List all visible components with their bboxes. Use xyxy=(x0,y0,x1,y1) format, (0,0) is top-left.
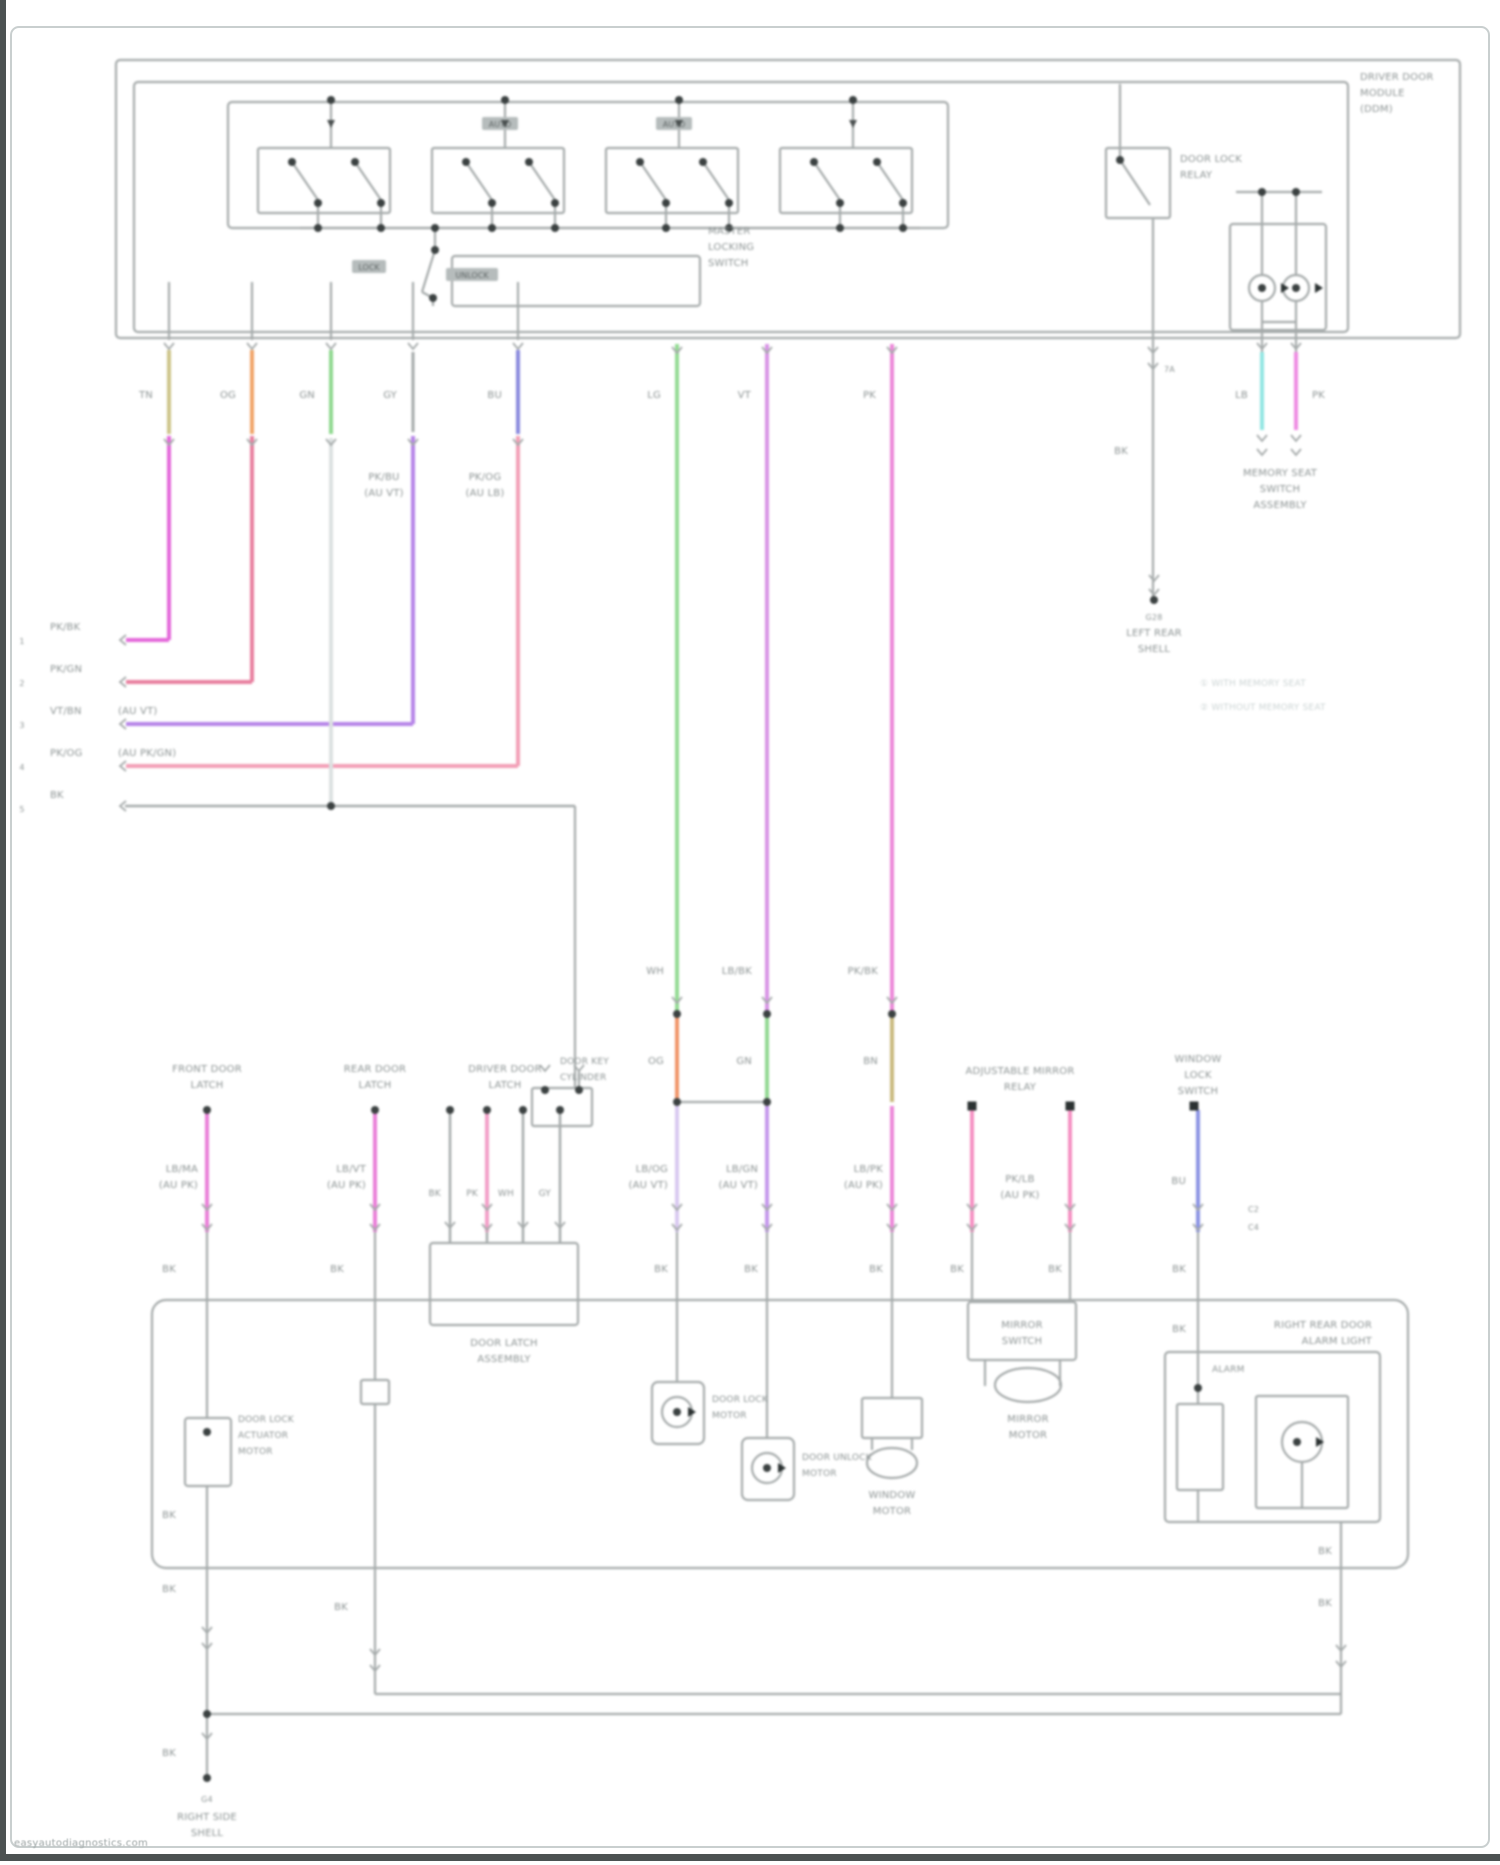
tag-label: LOCK xyxy=(358,263,380,272)
junction-dot xyxy=(377,224,385,232)
component-box xyxy=(361,1380,389,1404)
diagram-label: (AU PK/GN) xyxy=(118,748,176,759)
diagram-label: LEFT REAR xyxy=(1126,628,1182,639)
diagram-label: G4 xyxy=(201,1795,213,1804)
diagram-label: WINDOW xyxy=(869,1490,916,1501)
diagram-label: LOCK xyxy=(1184,1070,1212,1081)
diagram-label: RIGHT REAR DOOR xyxy=(1274,1320,1372,1331)
diagram-label: VT xyxy=(738,390,752,401)
diagram-label: PK/OG xyxy=(469,472,502,483)
diagram-label: (DDM) xyxy=(1360,104,1393,115)
diagram-label: BK xyxy=(1172,1264,1186,1275)
diagram-label: SHELL xyxy=(191,1828,224,1839)
diagram-label: BK xyxy=(1114,446,1128,457)
arrow-down-icon xyxy=(327,120,335,128)
motor-oval xyxy=(867,1448,917,1478)
connector-tick xyxy=(247,343,257,349)
junction-dot xyxy=(899,199,907,207)
wiring-diagram: LOCKUNLOCKAUTOAUTODRIVER DOORMODULE(DDM)… xyxy=(0,0,1500,1861)
diagram-label: (AU PK) xyxy=(1000,1190,1039,1201)
diagram-label: PK/OG xyxy=(50,748,83,759)
diagram-label: SWITCH xyxy=(1002,1336,1042,1347)
diagram-label: WINDOW xyxy=(1175,1054,1222,1065)
connector-tick xyxy=(408,343,418,349)
diagram-label: MOTOR xyxy=(1009,1430,1047,1441)
wire-gray xyxy=(703,162,729,200)
diagram-label: SWITCH xyxy=(1178,1086,1218,1097)
diagram-label: BK xyxy=(869,1264,883,1275)
diagram-label: DOOR LOCK xyxy=(238,1415,295,1425)
connector-tick xyxy=(326,343,336,349)
diagram-label: G28 xyxy=(1146,613,1163,622)
connector-tick xyxy=(1257,435,1267,441)
diagram-label: VT/BN xyxy=(50,706,82,717)
diagram-label: BK xyxy=(429,1189,442,1199)
wire-gray xyxy=(1120,160,1150,205)
diagram-label: MODULE xyxy=(1360,88,1405,99)
junction-dot xyxy=(483,1106,491,1114)
connector-tick xyxy=(120,761,126,771)
diagram-label: BK xyxy=(162,1584,176,1595)
connector-tick xyxy=(120,635,126,645)
diagram-label: REAR DOOR xyxy=(344,1064,406,1075)
junction-dot xyxy=(662,199,670,207)
connector-tick xyxy=(513,343,523,349)
diagram-label: DOOR UNLOCK xyxy=(802,1453,873,1463)
diagram-label: 7A xyxy=(1164,365,1175,374)
junction-dot xyxy=(1194,1384,1202,1392)
junction-dot xyxy=(873,158,881,166)
junction-dot xyxy=(327,96,335,104)
diagram-label: WH xyxy=(646,966,664,977)
diagram-label: 2 xyxy=(19,679,24,688)
connector-square xyxy=(1066,1102,1075,1111)
junction-dot xyxy=(203,1710,211,1718)
diagram-label: LATCH xyxy=(489,1080,522,1091)
junction-dot xyxy=(556,1106,564,1114)
diagram-label: GN xyxy=(299,390,315,401)
junction-dot xyxy=(203,1428,211,1436)
junction-dot xyxy=(1293,1438,1301,1446)
component-box xyxy=(432,148,564,213)
diagram-label: ② WITHOUT MEMORY SEAT xyxy=(1200,703,1326,713)
junction-dot xyxy=(1116,156,1124,164)
diagram-label: LB/OG xyxy=(636,1164,668,1175)
tag-label: UNLOCK xyxy=(455,271,489,280)
diagram-label: GN xyxy=(736,1056,752,1067)
diagram-label: MOTOR xyxy=(802,1469,837,1479)
diagram-label: ALARM xyxy=(1212,1365,1245,1375)
junction-dot xyxy=(836,224,844,232)
diagram-label: RELAY xyxy=(1180,170,1213,181)
connector-tick xyxy=(1291,435,1301,441)
junction-dot xyxy=(488,199,496,207)
diagram-label: MIRROR xyxy=(1001,1320,1043,1331)
connector-tick xyxy=(120,719,126,729)
junction-dot xyxy=(446,1106,454,1114)
wire-gray xyxy=(355,162,381,200)
junction-dot xyxy=(203,1774,211,1782)
wire-gray xyxy=(877,162,903,200)
diagram-label: BK xyxy=(654,1264,668,1275)
diagram-label: WH xyxy=(498,1189,514,1199)
diagram-label: BK xyxy=(334,1602,348,1613)
junction-dot xyxy=(501,96,509,104)
junction-dot xyxy=(699,158,707,166)
component-box xyxy=(968,1302,1076,1360)
diagram-label: OG xyxy=(648,1056,664,1067)
component-box xyxy=(258,148,390,213)
diagram-label: LG xyxy=(647,390,661,401)
diagram-label: ADJUSTABLE MIRROR xyxy=(966,1066,1075,1077)
diagram-label: BK xyxy=(1172,1324,1186,1335)
diagram-label: (AU VT) xyxy=(364,488,404,499)
junction-dot xyxy=(849,96,857,104)
junction-dot xyxy=(675,96,683,104)
wire-gray xyxy=(422,250,435,292)
junction-dot xyxy=(1292,188,1300,196)
junction-dot xyxy=(203,1106,211,1114)
diagram-label: (AU VT) xyxy=(629,1180,669,1191)
wire-gray xyxy=(529,162,555,200)
component-box xyxy=(606,148,738,213)
junction-dot xyxy=(377,199,385,207)
diagram-label: BK xyxy=(1318,1598,1332,1609)
diagram-label: BK xyxy=(330,1264,344,1275)
diagram-label: DRIVER DOOR xyxy=(1360,72,1433,83)
wiring-diagram-svg: LOCKUNLOCKAUTOAUTODRIVER DOORMODULE(DDM)… xyxy=(0,0,1500,1861)
diagram-label: 3 xyxy=(19,721,24,730)
component-box xyxy=(134,82,1348,332)
diagram-label: MOTOR xyxy=(238,1447,273,1457)
junction-dot xyxy=(525,158,533,166)
diagram-label: MASTER xyxy=(708,226,750,237)
diagram-label: PK/BU xyxy=(368,472,399,483)
diagram-label: PK/LB xyxy=(1005,1174,1034,1185)
diagram-label: FRONT DOOR xyxy=(172,1064,242,1075)
diagram-label: DOOR KEY xyxy=(560,1057,609,1067)
diagram-label: MEMORY SEAT xyxy=(1243,468,1318,479)
diagram-label: LB/GN xyxy=(726,1164,758,1175)
junction-dot xyxy=(314,224,322,232)
watermark: easyautodiagnostics.com xyxy=(14,1838,148,1849)
diagram-label: LB/PK xyxy=(854,1164,884,1175)
diagram-label: GY xyxy=(539,1189,552,1199)
junction-dot xyxy=(836,199,844,207)
diagram-label: PK xyxy=(466,1189,479,1199)
diagram-label: MIRROR xyxy=(1007,1414,1049,1425)
diagram-label: MOTOR xyxy=(712,1411,747,1421)
diagram-label: DOOR LOCK xyxy=(1180,154,1242,165)
junction-dot xyxy=(899,224,907,232)
junction-dot xyxy=(431,246,439,254)
junction-dot xyxy=(636,158,644,166)
wire-gray xyxy=(814,162,840,200)
junction-dot xyxy=(1258,188,1266,196)
diagram-label: 1 xyxy=(19,637,24,646)
junction-dot xyxy=(673,1098,681,1106)
junction-dot xyxy=(541,1086,549,1094)
component-box xyxy=(430,1243,578,1325)
diagram-label: BU xyxy=(1171,1176,1186,1187)
junction-dot xyxy=(763,1010,771,1018)
arrow-down-icon xyxy=(849,120,857,128)
diagram-label: BK xyxy=(1048,1264,1062,1275)
diagram-label: DRIVER DOOR xyxy=(468,1064,541,1075)
wire-gray xyxy=(292,162,318,200)
component-box xyxy=(780,148,912,213)
diagram-label: 4 xyxy=(19,763,24,772)
diagram-label: ASSEMBLY xyxy=(1253,500,1307,511)
diagram-label: TN xyxy=(138,390,153,401)
diagram-label: PK/GN xyxy=(50,664,82,675)
arrow-right-icon xyxy=(1281,283,1289,293)
junction-dot xyxy=(462,158,470,166)
junction-dot xyxy=(314,199,322,207)
diagram-label: LB/MA xyxy=(166,1164,198,1175)
diagram-label: OG xyxy=(220,390,236,401)
diagram-label: (AU PK) xyxy=(159,1180,198,1191)
connector-tick xyxy=(120,677,126,687)
component-box xyxy=(152,1300,1408,1568)
diagram-label: (AU VT) xyxy=(719,1180,759,1191)
diagram-label: DOOR LOCK xyxy=(712,1395,769,1405)
component-box xyxy=(862,1398,922,1438)
diagram-label: SWITCH xyxy=(1260,484,1300,495)
connector-square xyxy=(968,1102,977,1111)
diagram-label: DOOR LATCH xyxy=(470,1338,537,1349)
diagram-label: LB xyxy=(1235,390,1248,401)
diagram-label: MOTOR xyxy=(873,1506,911,1517)
junction-dot xyxy=(673,1408,681,1416)
junction-dot xyxy=(488,224,496,232)
junction-dot xyxy=(673,1010,681,1018)
diagram-label: (AU PK) xyxy=(327,1180,366,1191)
junction-dot xyxy=(431,224,439,232)
diagram-label: BK xyxy=(744,1264,758,1275)
diagram-label: (AU LB) xyxy=(466,488,505,499)
diagram-label: PK/BK xyxy=(848,966,879,977)
diagram-label: BN xyxy=(863,1056,878,1067)
junction-dot xyxy=(519,1106,527,1114)
diagram-label: BK xyxy=(950,1264,964,1275)
connector-tick xyxy=(1291,449,1301,455)
junction-dot xyxy=(662,224,670,232)
junction-dot xyxy=(1292,284,1300,292)
wire-gray xyxy=(466,162,492,200)
junction-dot xyxy=(725,199,733,207)
junction-dot xyxy=(371,1106,379,1114)
junction-dot xyxy=(1150,596,1158,604)
component-box xyxy=(1106,148,1170,218)
connector-square xyxy=(1190,1102,1199,1111)
diagram-label: LOCKING xyxy=(708,242,754,253)
diagram-label: GY xyxy=(383,390,397,401)
diagram-label: PK xyxy=(1312,390,1325,401)
diagram-label: BU xyxy=(487,390,502,401)
junction-dot xyxy=(351,158,359,166)
diagram-label: C4 xyxy=(1248,1223,1259,1232)
connector-tick xyxy=(1257,449,1267,455)
diagram-label: PK xyxy=(863,390,876,401)
wire-gray xyxy=(640,162,666,200)
junction-dot xyxy=(288,158,296,166)
diagram-label: 5 xyxy=(19,805,24,814)
diagram-label: LB/BK xyxy=(722,966,752,977)
diagram-label: BK xyxy=(162,1748,176,1759)
diagram-label: ACTUATOR xyxy=(238,1431,288,1441)
diagram-label: BK xyxy=(50,790,64,801)
diagram-label: ① WITH MEMORY SEAT xyxy=(1200,679,1306,689)
junction-dot xyxy=(763,1098,771,1106)
arrow-right-icon xyxy=(1315,283,1323,293)
diagram-label: ASSEMBLY xyxy=(477,1354,531,1365)
diagram-label: PK/BK xyxy=(50,622,81,633)
diagram-label: SHELL xyxy=(1138,644,1171,655)
junction-dot xyxy=(551,224,559,232)
diagram-label: (AU VT) xyxy=(118,706,158,717)
junction-dot xyxy=(327,802,335,810)
diagram-label: BK xyxy=(162,1264,176,1275)
diagram-label: (AU PK) xyxy=(844,1180,883,1191)
junction-dot xyxy=(888,1010,896,1018)
diagram-label: BK xyxy=(1318,1546,1332,1557)
junction-dot xyxy=(551,199,559,207)
diagram-label: ALARM LIGHT xyxy=(1302,1336,1373,1347)
junction-dot xyxy=(1258,284,1266,292)
motor-oval xyxy=(995,1368,1061,1402)
component-box xyxy=(1177,1404,1223,1490)
junction-dot xyxy=(810,158,818,166)
diagram-label: RELAY xyxy=(1004,1082,1037,1093)
junction-dot xyxy=(429,294,437,302)
diagram-label: SWITCH xyxy=(708,258,748,269)
diagram-label: BK xyxy=(162,1510,176,1521)
diagram-label: LB/VT xyxy=(336,1164,366,1175)
diagram-label: LATCH xyxy=(359,1080,392,1091)
junction-dot xyxy=(575,1086,583,1094)
junction-dot xyxy=(763,1464,771,1472)
diagram-label: LATCH xyxy=(191,1080,224,1091)
diagram-label: CYLINDER xyxy=(560,1073,607,1083)
connector-tick xyxy=(164,343,174,349)
diagram-label: C2 xyxy=(1248,1205,1259,1214)
diagram-label: RIGHT SIDE xyxy=(177,1812,237,1823)
component-box xyxy=(1230,224,1326,330)
